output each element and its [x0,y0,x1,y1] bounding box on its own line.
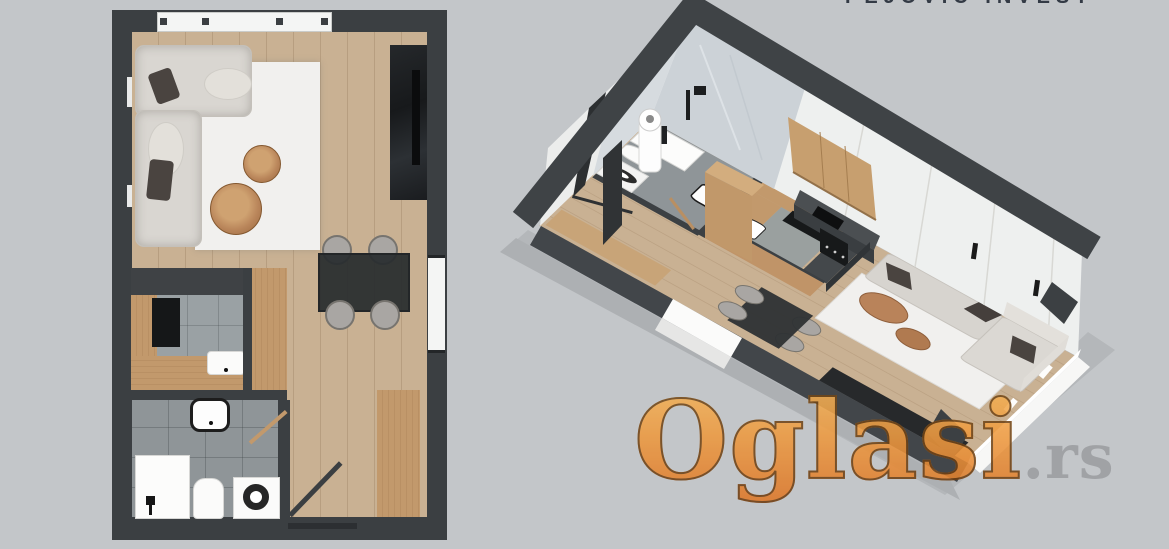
shower-head [146,496,155,505]
shower-head-3d [694,86,706,95]
shower-head-pole [149,505,152,515]
wall-bottom [112,517,447,540]
shower [135,455,190,519]
faucet-dot [224,368,228,372]
towel-roll-hole [646,115,654,123]
bathroom-sink [190,398,230,432]
floor-plan-3d-view [470,0,1169,549]
wall-vent-slot [127,185,132,207]
dining-chair [325,300,355,330]
window-mullion [276,18,283,25]
kitchen-counter-dark [131,268,249,295]
window-top [157,12,332,32]
tv-screen [412,70,420,165]
coffee-table-large [210,183,262,235]
kitchen-sink [207,351,245,375]
window-mullion [321,18,328,25]
washer-door-ring [243,484,269,510]
sofa-cushion [204,68,252,100]
wall-vent-slot [127,77,132,107]
floor-plan-2d-view [112,10,447,540]
stove [152,298,180,347]
tall-cabinet [250,268,287,390]
window-mullion [202,18,209,25]
sofa-pillow [146,159,174,201]
window-mullion [160,18,167,25]
washing-machine [233,477,280,519]
shower-pole [686,90,690,120]
entry-wardrobe [377,390,420,517]
toilet [193,478,224,519]
dining-chair [370,300,400,330]
entrance-threshold [288,523,357,529]
tv-unit [390,45,427,200]
wall-kitchen-right [243,268,252,397]
coffee-table-small [243,145,281,183]
window-right [428,255,445,353]
drain-dot [209,421,213,425]
